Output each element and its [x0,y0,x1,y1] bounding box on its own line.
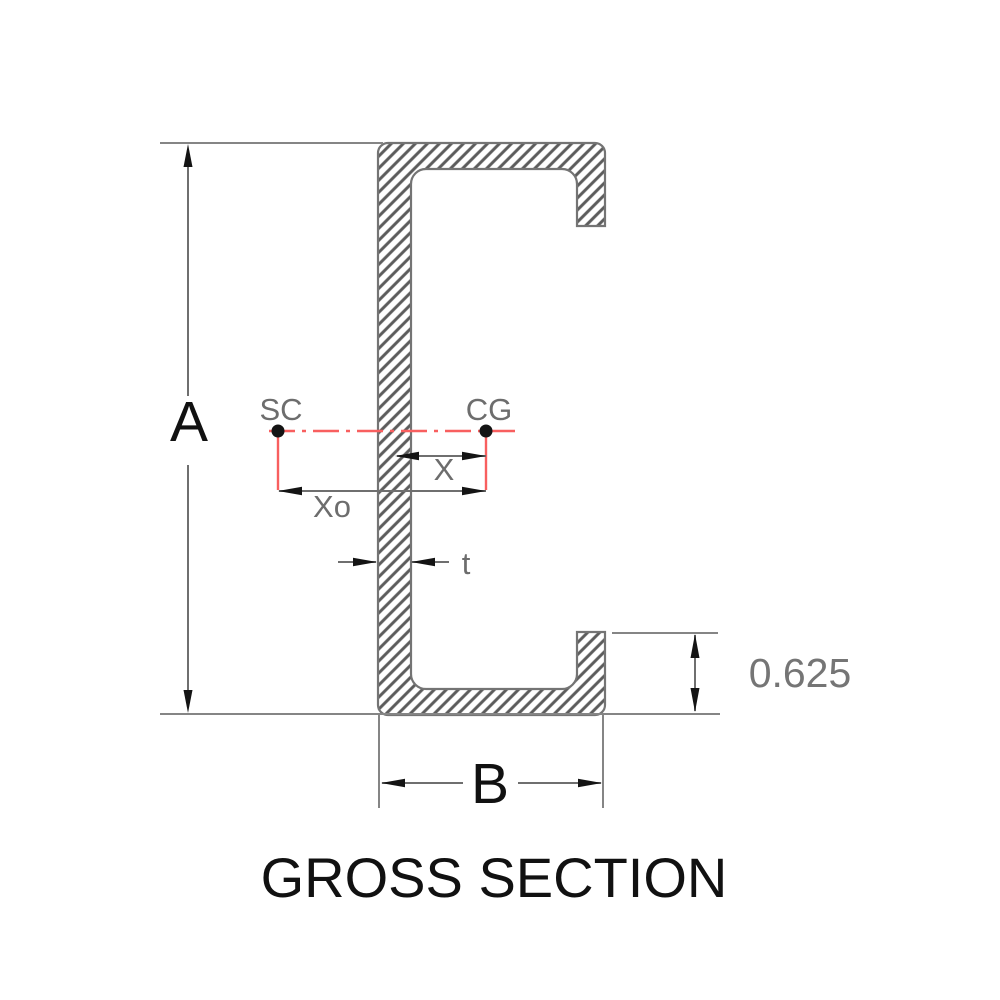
centroid-offset-label: X [434,452,455,487]
arrowhead-left-icon [381,779,405,787]
dimension-depth-A: A [170,144,208,713]
arrowhead-right-icon [462,452,486,460]
arrowhead-down-icon [691,688,700,712]
arrowhead-down-icon [184,690,193,713]
gross-section-drawing: A SC CG X Xo t 0.625 [0,0,1000,1000]
drawing-title: GROSS SECTION [261,846,728,909]
lip-length-value: 0.625 [749,650,852,696]
arrowhead-left-icon [411,558,435,566]
centroid-label: CG [466,392,513,427]
dimension-flange-B: B [381,752,602,816]
depth-label: A [170,390,208,454]
arrowhead-right-icon [578,779,602,787]
shear-center-label: SC [259,392,302,427]
thickness-label: t [462,546,471,581]
dimension-lip-length: 0.625 [691,634,852,712]
arrowhead-left-icon [278,487,302,495]
flange-width-label: B [471,752,509,816]
shear-center-offset-label: Xo [313,489,351,524]
arrowhead-right-icon [353,558,377,566]
arrowhead-up-icon [184,144,193,167]
arrowhead-up-icon [691,634,700,658]
arrowhead-right-icon [462,487,486,495]
